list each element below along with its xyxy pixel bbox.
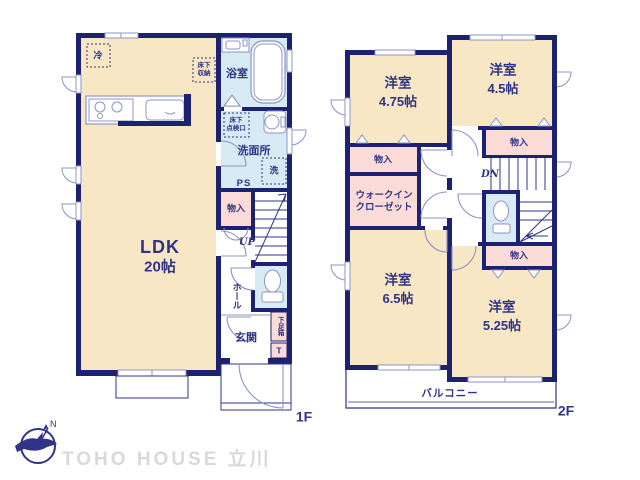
room-nw-size-label: 4.75帖 (379, 94, 417, 110)
shoe-cabinet-label: 下足箱 (275, 316, 283, 336)
room-nw-name-label: 洋室 (385, 76, 412, 93)
wic-label: ウォークイン クローゼット (355, 190, 412, 214)
bath-label: 浴室 (226, 68, 248, 82)
washer-label: 洗 (269, 165, 278, 176)
closet-nw-label: 物入 (374, 154, 392, 165)
stairs-down-label: DN (481, 169, 499, 182)
entrance-porch (221, 364, 291, 410)
floorplan-page: N 冷 床下 収納 浴室 床下 点検口 洗面所 洗 PS 物入 UP ホール L… (0, 0, 640, 480)
kitchen-counter-icon (86, 94, 191, 126)
floor2-label: 2F (558, 402, 574, 420)
closet-1f-label: 物入 (227, 203, 245, 214)
room-se-size-label: 5.25帖 (483, 318, 521, 334)
shoe-cabinet-t-label: T (276, 346, 281, 357)
bathtub-icon (251, 41, 285, 103)
bath-vanity-icon (222, 38, 249, 52)
floorplan-2f (331, 35, 571, 408)
compass-north-label: N (50, 419, 57, 429)
brand-logo-text: TOHO HOUSE 立川 (62, 444, 272, 471)
room-ne-size-label: 4.5帖 (487, 81, 518, 97)
compass-icon: N (15, 419, 57, 463)
entrance-label: 玄関 (235, 332, 257, 346)
fridge-label: 冷 (93, 50, 102, 61)
ldk-size-label: 20帖 (144, 259, 176, 278)
hall-2f-floor (452, 130, 482, 242)
floorplan-1f (62, 33, 306, 410)
floor1-label: 1F (296, 408, 312, 426)
washroom-label: 洗面所 (238, 145, 271, 159)
room-sw-size-label: 6.5帖 (382, 291, 413, 307)
floorplan-drawing: N (0, 0, 640, 480)
stairs-up-label: UP (239, 237, 255, 250)
ldk-name-label: LDK (140, 236, 180, 259)
hall-label: ホール (230, 283, 241, 310)
washroom-sink-icon (264, 111, 286, 133)
pipe-space-label: PS (237, 178, 252, 190)
room-ldk-floor (81, 38, 216, 370)
terrace-step (116, 376, 188, 398)
toilet-2f-icon (493, 201, 510, 233)
room-sw-name-label: 洋室 (385, 273, 412, 290)
room-se-name-label: 洋室 (489, 300, 516, 317)
underfloor-storage-label: 床下 収納 (198, 62, 211, 78)
hall-strip-2f-floor (421, 147, 447, 226)
closet-se-label: 物入 (510, 250, 528, 261)
underfloor-inspection-label: 床下 点検口 (226, 117, 246, 133)
closet-ne-label: 物入 (510, 137, 528, 148)
balcony-label: バルコニー (421, 387, 478, 400)
room-ne-name-label: 洋室 (490, 63, 517, 80)
